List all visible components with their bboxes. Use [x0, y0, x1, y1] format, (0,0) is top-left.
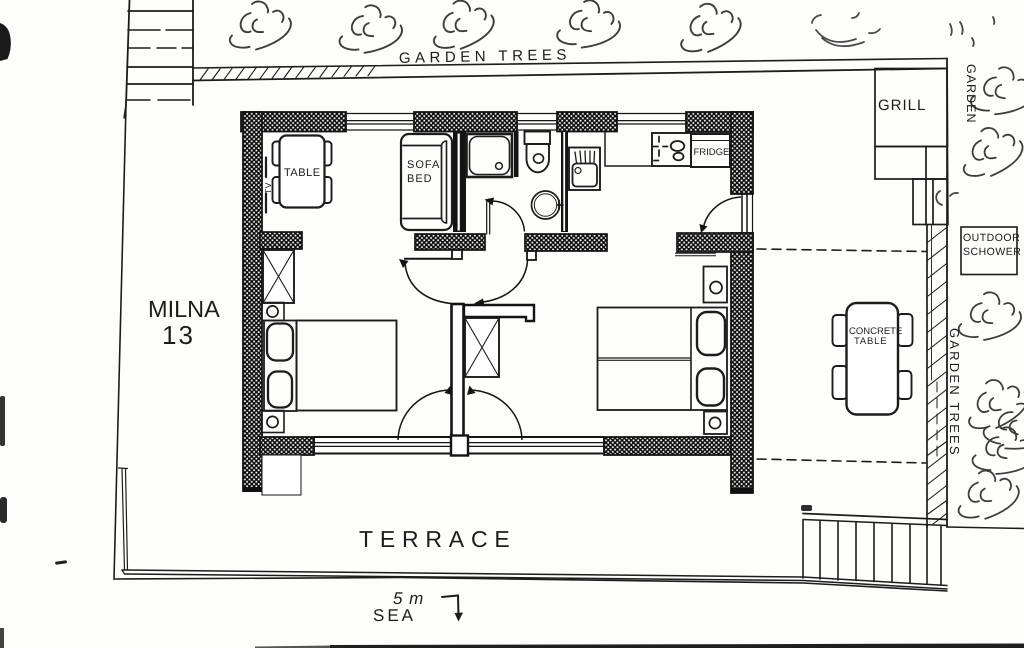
svg-text:OUTDOOR: OUTDOOR — [963, 232, 1020, 244]
svg-text:SCHOWER: SCHOWER — [963, 246, 1021, 258]
svg-text:FRIDGE: FRIDGE — [694, 147, 730, 158]
svg-text:SEA: SEA — [373, 606, 416, 625]
svg-text:GRILL: GRILL — [878, 97, 926, 114]
svg-text:TERRACE: TERRACE — [359, 526, 517, 552]
svg-text:GARDEN: GARDEN — [964, 64, 978, 123]
svg-text:SOFA: SOFA — [407, 159, 440, 171]
svg-text:GARDEN TREES: GARDEN TREES — [399, 46, 571, 67]
svg-text:TABLE: TABLE — [854, 336, 887, 347]
svg-text:TV: TV — [263, 182, 273, 194]
svg-text:MILNA: MILNA — [148, 296, 220, 322]
svg-text:BED: BED — [407, 173, 433, 185]
svg-text:13: 13 — [162, 320, 195, 350]
svg-text:GARDEN TREES: GARDEN TREES — [947, 328, 962, 457]
svg-text:TABLE: TABLE — [284, 167, 321, 179]
